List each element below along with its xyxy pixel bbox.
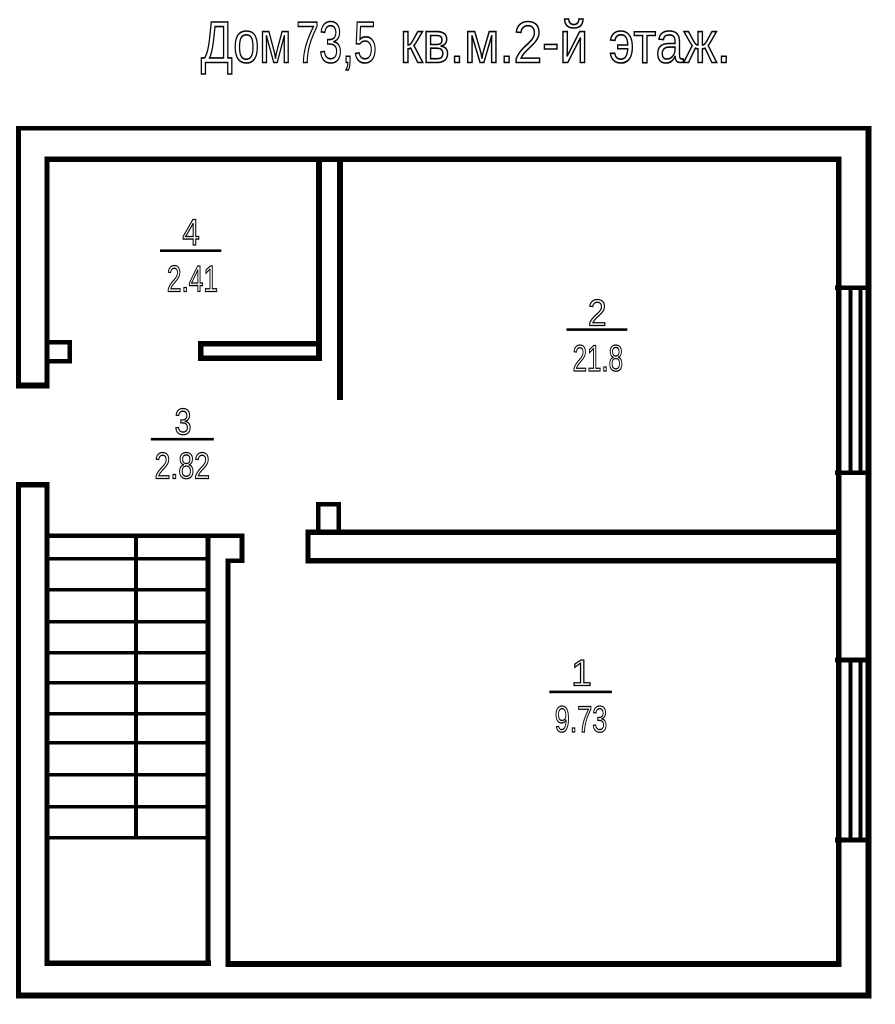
svg-text:этаж.: этаж. bbox=[609, 11, 731, 75]
svg-text:9.73: 9.73 bbox=[555, 699, 608, 740]
svg-text:2.82: 2.82 bbox=[155, 445, 210, 486]
svg-text:2.41: 2.41 bbox=[167, 258, 218, 300]
svg-text:Дом: Дом bbox=[201, 11, 291, 76]
svg-text:кв.м.: кв.м. bbox=[400, 10, 514, 76]
svg-text:73,5: 73,5 bbox=[296, 10, 377, 76]
svg-text:1: 1 bbox=[571, 652, 592, 693]
svg-text:2: 2 bbox=[588, 293, 607, 334]
svg-text:4: 4 bbox=[182, 213, 199, 254]
svg-text:3: 3 bbox=[175, 402, 192, 444]
svg-text:21.8: 21.8 bbox=[573, 338, 623, 380]
svg-text:2-й: 2-й bbox=[514, 10, 589, 76]
